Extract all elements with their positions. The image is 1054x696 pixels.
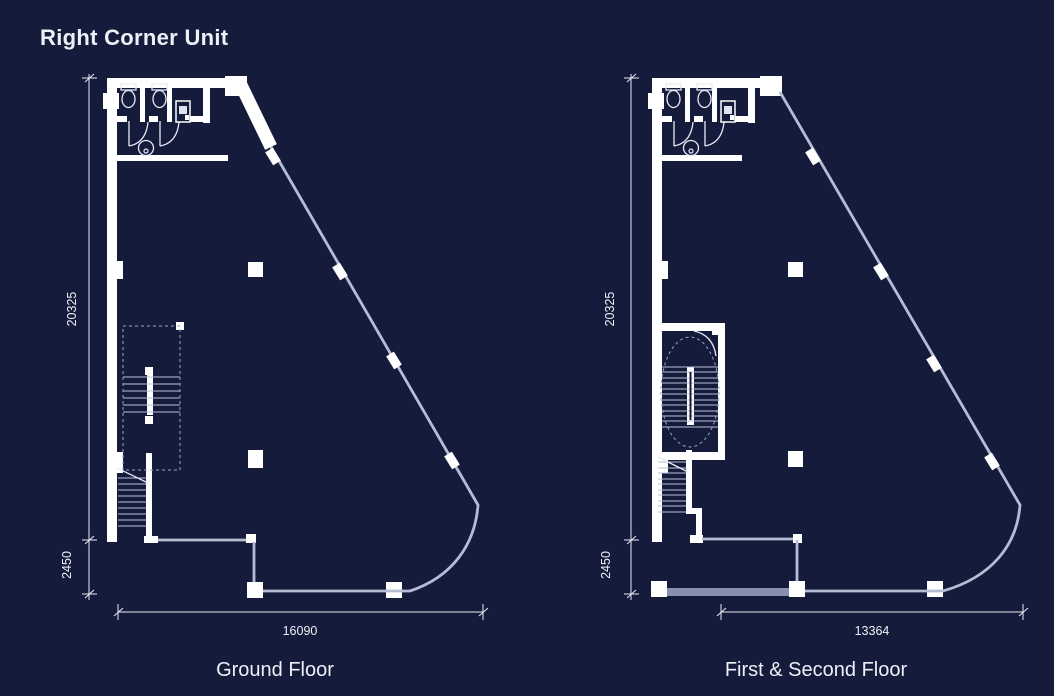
gf-glazing [158, 147, 478, 591]
gf-floor-label: Ground Floor [216, 659, 334, 681]
gf-toilet-bowl [122, 91, 135, 108]
gf-cabinet-detail [179, 106, 187, 114]
fs-dimension-lines [631, 74, 1023, 612]
fs-cabinet-detail [730, 115, 734, 120]
floorplan-canvas: Right Corner Unit 20325 2450 16090 [0, 0, 1054, 696]
ground-floor-plan: 20325 2450 16090 Ground Floor [60, 74, 488, 681]
fs-grey-wall [655, 588, 791, 596]
fs-floor-label: First & Second Floor [725, 659, 908, 681]
gf-frontage-dimension: 16090 [283, 624, 318, 638]
fs-walls [648, 76, 943, 597]
fs-glazing [702, 92, 1020, 591]
gf-walls [103, 76, 402, 598]
first-second-floor-plan: 20325 2450 13364 First & Second Floor [599, 74, 1028, 681]
fs-toilet-bowl [667, 91, 680, 108]
gf-toilet-bowl [153, 91, 166, 108]
fs-toilet-bowl [698, 91, 711, 108]
fs-fountain-spout [689, 149, 693, 153]
fs-frontage-dimension: 13364 [855, 624, 890, 638]
floorplan-page: Right Corner Unit 20325 2450 16090 [0, 0, 1054, 696]
gf-depth-dimension: 20325 [65, 292, 79, 327]
fs-depth-dimension: 20325 [603, 292, 617, 327]
gf-diagonal-wall [241, 85, 271, 147]
gf-setback-dimension: 2450 [60, 551, 74, 579]
fs-mullions [809, 150, 996, 468]
page-title: Right Corner Unit [40, 25, 229, 50]
fs-setback-dimension: 2450 [599, 551, 613, 579]
fs-cabinet-detail [724, 106, 732, 114]
gf-fountain-spout [144, 149, 148, 153]
gf-cabinet-detail [185, 115, 189, 120]
